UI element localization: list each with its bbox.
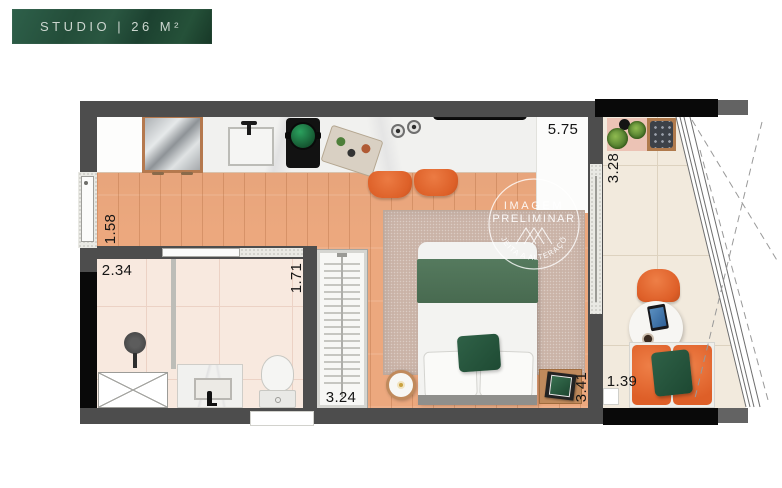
dimension-label: 1.58 bbox=[95, 213, 125, 245]
dimension-label: 2.34 bbox=[99, 262, 135, 278]
watermark: IMAGEM PRELIMINAR SUJEITA A ALTERAÇÕES bbox=[474, 164, 594, 284]
floor-plan: IMAGEM PRELIMINAR SUJEITA A ALTERAÇÕES 5… bbox=[0, 0, 782, 488]
dimension-label: 3.24 bbox=[323, 389, 359, 405]
dimension-label: 3.28 bbox=[598, 152, 628, 184]
door-swing-lines bbox=[692, 120, 778, 400]
watermark-line1: IMAGEM bbox=[504, 200, 564, 212]
mountains-icon bbox=[516, 228, 552, 244]
dimension-label: 1.39 bbox=[604, 373, 640, 389]
dimension-label: 3.41 bbox=[566, 371, 596, 403]
dimension-label: 5.75 bbox=[545, 121, 581, 137]
page: { "banner": { "label": "STUDIO | 26 M²" … bbox=[0, 0, 782, 488]
dimension-label: 1.71 bbox=[281, 262, 311, 294]
facade-glass-lines bbox=[676, 117, 760, 407]
watermark-line2: PRELIMINAR bbox=[492, 213, 575, 225]
